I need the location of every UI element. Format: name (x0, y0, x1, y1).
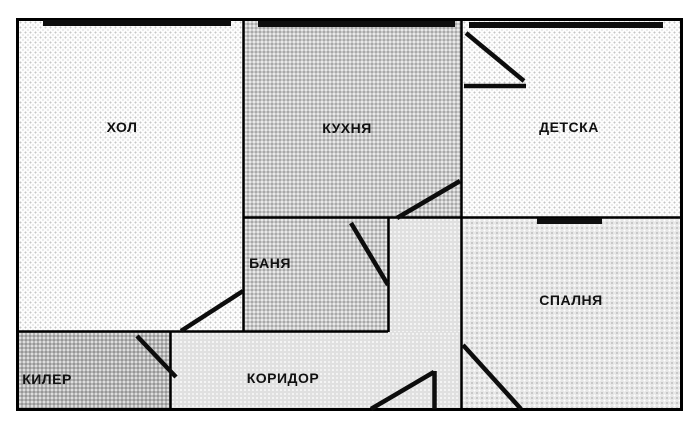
label-hol: ХОЛ (107, 119, 138, 135)
label-koridor: КОРИДОР (247, 370, 320, 386)
label-kuhnya: КУХНЯ (322, 120, 372, 136)
room-hol (18, 20, 242, 331)
label-spalnya: СПАЛНЯ (539, 292, 602, 308)
room-banya (244, 218, 388, 331)
label-kiler: КИЛЕР (22, 371, 72, 387)
room-koridor-strip (389, 218, 461, 332)
label-detska: ДЕТСКА (539, 119, 599, 135)
room-kuhnya (244, 20, 461, 217)
room-spalnya (462, 218, 681, 409)
label-banya: БАНЯ (249, 255, 291, 271)
floor-plan: ХОЛ КУХНЯ ДЕТСКА БАНЯ СПАЛНЯ КИЛЕР КОРИД… (0, 0, 700, 425)
